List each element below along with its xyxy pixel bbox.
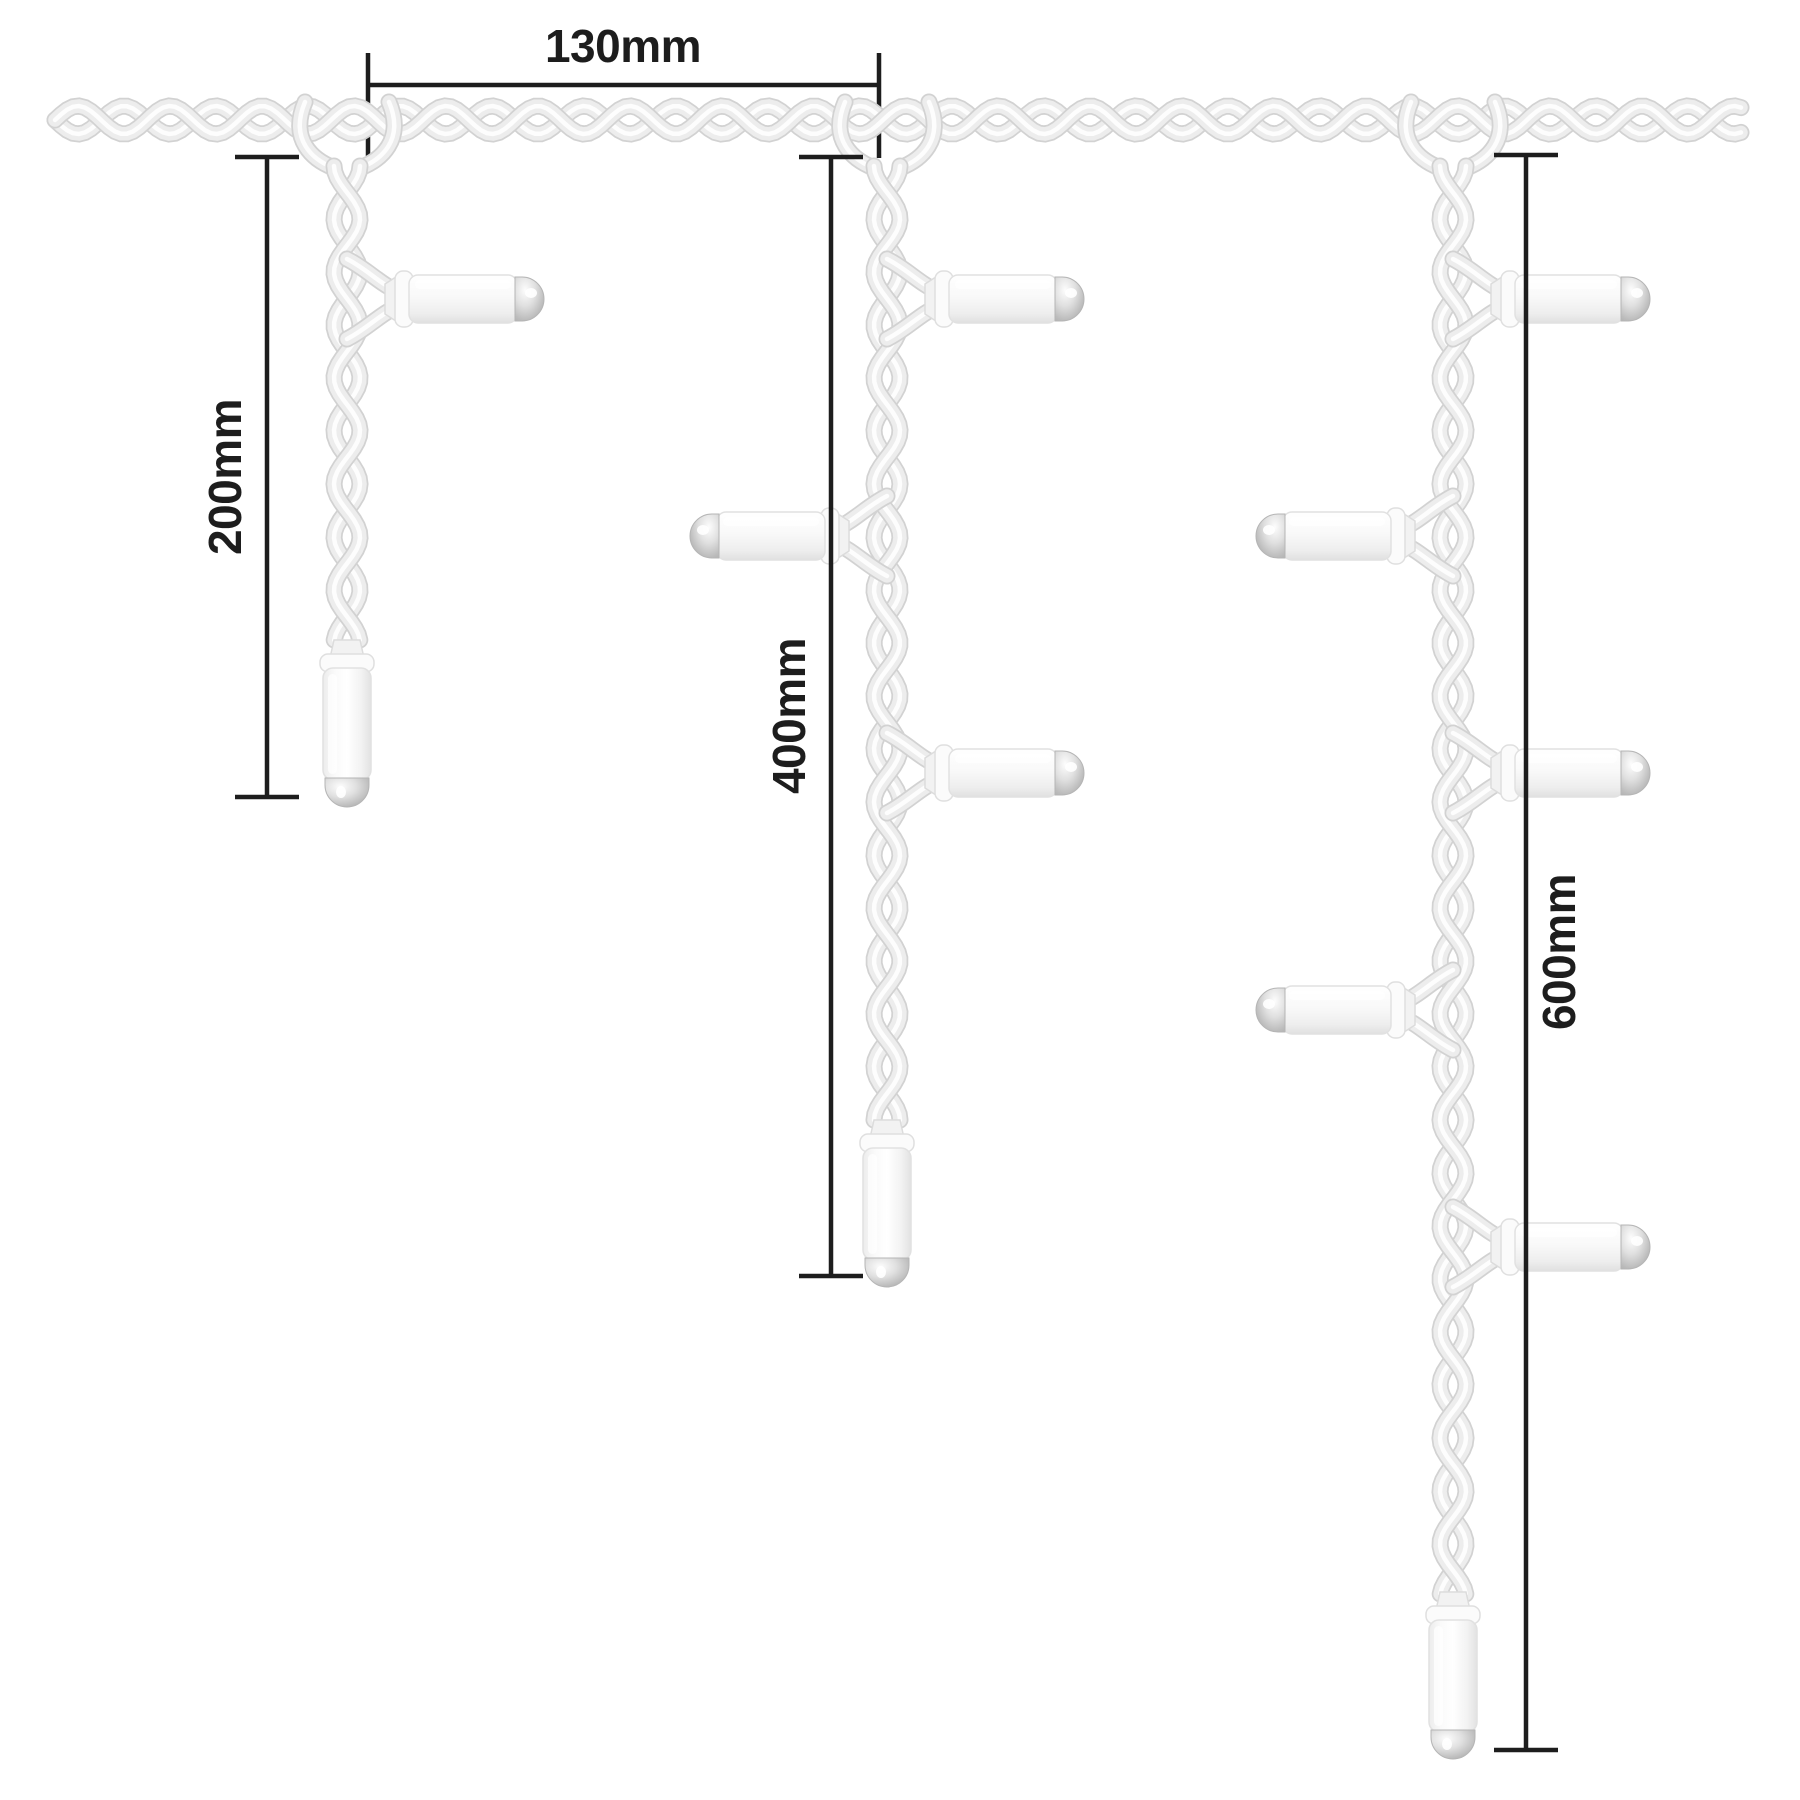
bulb-cap-highlight (1631, 762, 1643, 772)
bulb-cap-highlight (697, 525, 709, 535)
bulb-cap (1055, 277, 1084, 321)
bulb-cap-highlight (1065, 762, 1077, 772)
dimension-label-600mm: 600mm (1533, 874, 1585, 1030)
bulb-cap-highlight (336, 786, 346, 798)
bulb-body-highlight (1434, 1626, 1443, 1726)
bulb-cap-highlight (1442, 1738, 1452, 1750)
side-bulb-right (887, 259, 1084, 339)
bulb-cap-highlight (876, 1266, 886, 1278)
bulb-body-highlight (955, 280, 1051, 289)
drop-600mm-bulbs (1256, 259, 1650, 1759)
side-bulb-right (1453, 733, 1650, 813)
drop-200mm-rope (300, 102, 394, 640)
end-bulb (320, 640, 374, 807)
bulb-body-highlight (1289, 517, 1385, 526)
bulb-cap (1621, 277, 1650, 321)
bulb-body-highlight (1521, 280, 1617, 289)
bulb-cap (690, 514, 719, 558)
bulb-cap-highlight (1631, 1236, 1643, 1246)
side-bulb-right (1453, 1207, 1650, 1287)
bulb-cap-highlight (1263, 525, 1275, 535)
bulb-cap (1621, 1225, 1650, 1269)
bulb-cap (1256, 514, 1285, 558)
bulb-body-highlight (955, 754, 1051, 763)
bulb-cap-highlight (1631, 288, 1643, 298)
diagram-stage: 130mm 200mm 400mm 600mm (0, 0, 1800, 1800)
bulb-cap (1256, 988, 1285, 1032)
bulb-cap (1055, 751, 1084, 795)
bulb-cap (1431, 1730, 1475, 1759)
end-bulb (1426, 1592, 1480, 1759)
bulb-cap-highlight (1263, 999, 1275, 1009)
side-bulb-right (1453, 259, 1650, 339)
icicle-lights-dimension-diagram: 130mm 200mm 400mm 600mm (0, 0, 1800, 1800)
bulb-body-highlight (415, 280, 511, 289)
bulb-cap (325, 778, 369, 807)
bulb-body-highlight (1521, 1228, 1617, 1237)
side-bulb-right (887, 733, 1084, 813)
bulb-cap-highlight (525, 288, 537, 298)
bulb-cap-highlight (1065, 288, 1077, 298)
bulb-body-highlight (1521, 754, 1617, 763)
bulb-cap (1621, 751, 1650, 795)
side-bulb-right (347, 259, 544, 339)
bulb-cap (515, 277, 544, 321)
bulb-body-highlight (328, 674, 337, 774)
dimension-label-200mm: 200mm (199, 399, 251, 555)
side-bulb-left (1256, 970, 1453, 1050)
side-bulb-left (1256, 496, 1453, 576)
bulb-body-highlight (868, 1154, 877, 1254)
end-bulb (860, 1120, 914, 1287)
bulb-body-highlight (723, 517, 819, 526)
dimension-label-130mm: 130mm (545, 20, 701, 72)
dimension-label-400mm: 400mm (763, 638, 815, 794)
side-bulb-left (690, 496, 887, 576)
bulb-body-highlight (1289, 991, 1385, 1000)
bulb-cap (865, 1258, 909, 1287)
